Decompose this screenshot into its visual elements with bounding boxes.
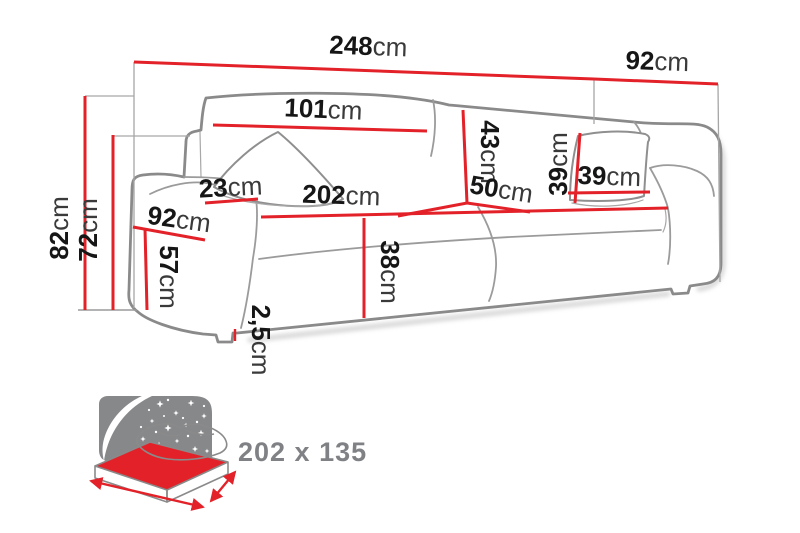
dim-armrest-width-label: 23cm <box>198 170 263 203</box>
dim-armrest-height-label: 57cm <box>154 245 184 309</box>
diagram-canvas: 248cm 92cm 101cm 43cm 23cm 92cm 57cm 82c… <box>0 0 800 533</box>
dim-total-width-line <box>134 62 594 79</box>
dim-total-depth-label: 92cm <box>625 45 690 77</box>
dim-armrest-height-line <box>145 228 147 310</box>
bed-icon <box>91 394 235 507</box>
dim-back-cushion-width-label: 101cm <box>284 92 363 125</box>
dim-total-depth-line <box>594 79 718 84</box>
dim-pillow-width-line <box>568 192 650 193</box>
dim-seat-height-label: 38cm <box>375 240 405 304</box>
sleeping-area-label: 202 x 135 <box>238 437 367 467</box>
dim-arm-height-label: 72cm <box>73 198 103 262</box>
dim-pillow-height-label: 39cm <box>543 132 573 196</box>
sofa-dimension-diagram: 248cm 92cm 101cm 43cm 23cm 92cm 57cm 82c… <box>0 0 800 533</box>
dim-leg-height-label: 2,5cm <box>246 305 276 376</box>
dim-total-height-label: 82cm <box>44 196 74 260</box>
dim-seat-width-label: 202cm <box>302 179 381 212</box>
dim-pillow-width-label: 39cm <box>577 160 642 192</box>
dim-total-width-label: 248cm <box>329 30 408 63</box>
